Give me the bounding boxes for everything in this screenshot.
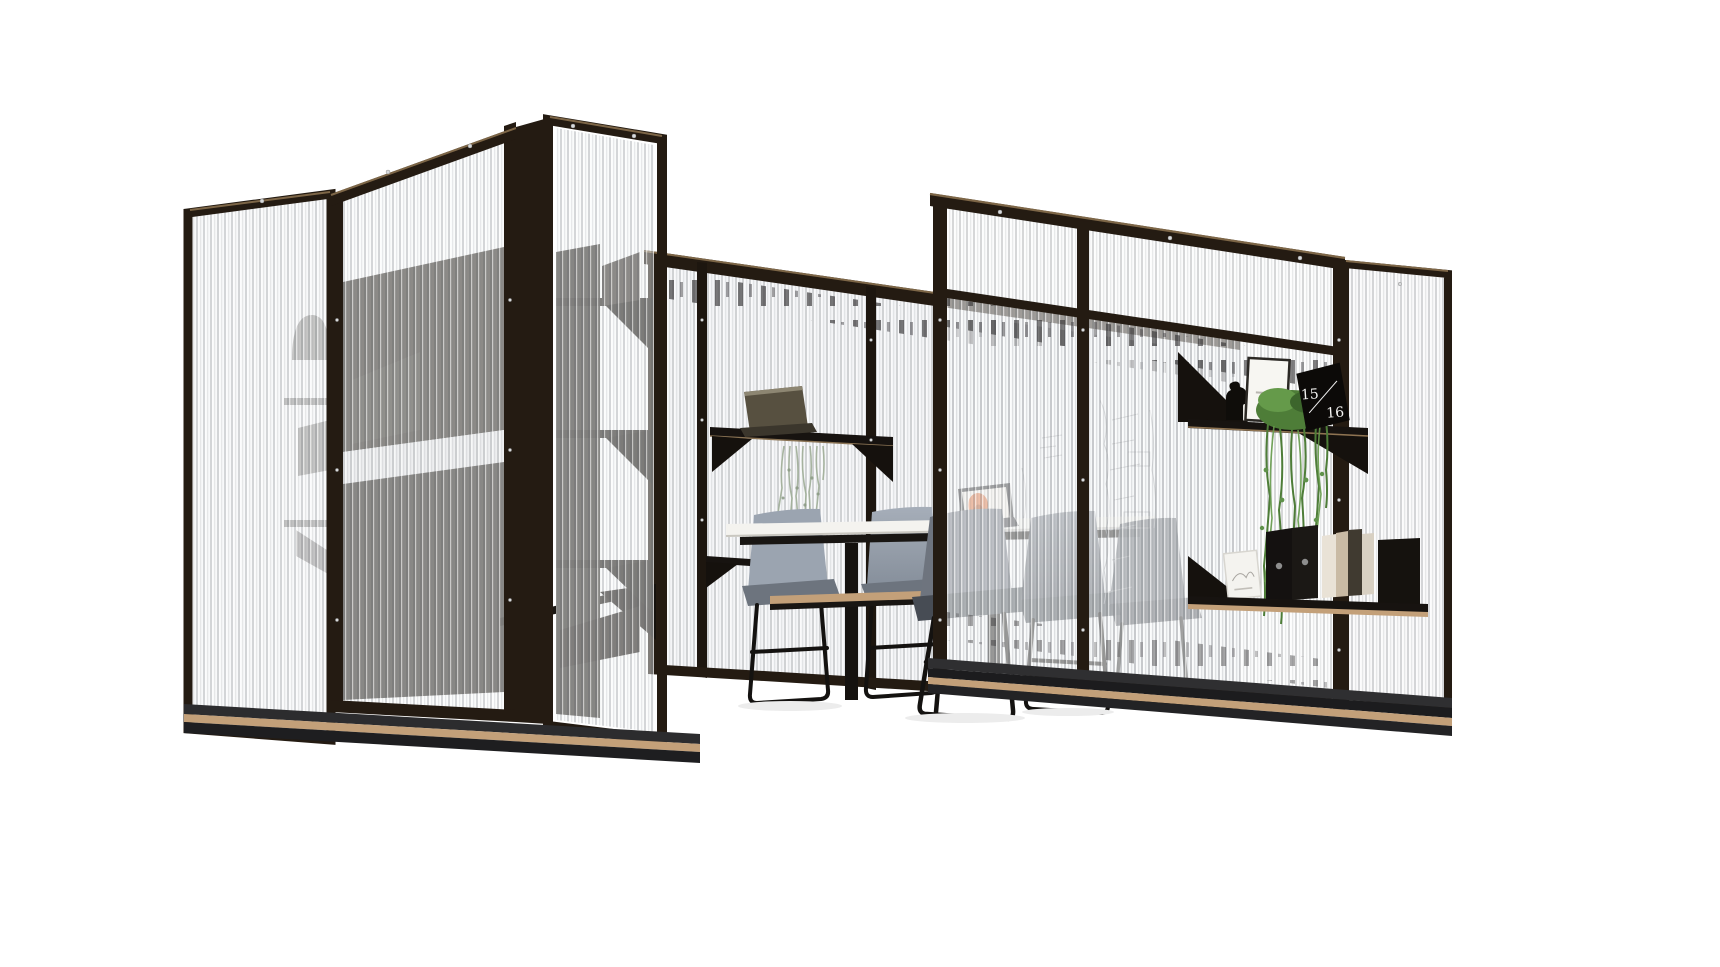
left-corner-panel — [548, 117, 662, 740]
books — [1322, 529, 1374, 598]
table-leg — [845, 543, 858, 700]
wall-post — [1077, 220, 1089, 698]
calendar-bottom-number: 16 — [1326, 405, 1345, 422]
far-right-panel — [1345, 261, 1448, 710]
render-canvas: 15 16 — [0, 0, 1720, 967]
meeting-pod-scene: 15 16 — [0, 0, 1720, 967]
fluted-door-panel — [188, 192, 331, 740]
binders — [1266, 525, 1318, 603]
storage-box — [1378, 538, 1420, 607]
left-wall — [184, 117, 700, 763]
right-wall: 15 16 — [928, 193, 1452, 736]
easel-card — [1224, 550, 1262, 599]
calendar-top-number: 15 — [1300, 386, 1319, 403]
left-wall-glass-panel — [331, 122, 516, 722]
wall-post — [933, 198, 947, 688]
